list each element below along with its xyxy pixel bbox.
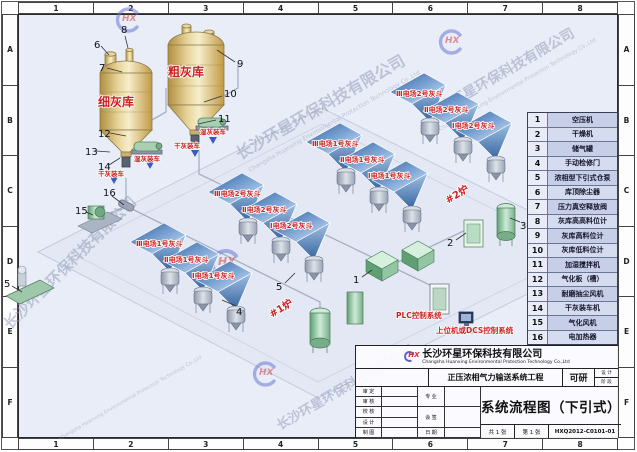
legend-item-number: 15: [528, 316, 548, 330]
sign-value: [382, 387, 418, 397]
legend-row: 1空压机: [528, 113, 617, 128]
legend-item-name: 浓相型下引式仓泵: [548, 171, 617, 185]
zone-label: B: [3, 85, 17, 156]
legend-row: 16电加热器: [528, 331, 617, 345]
title-block: HX 长沙环星环保科技有限公司 Changsha Huanxing Enviro…: [355, 345, 618, 438]
legend-row: 11加湿搅拌机: [528, 258, 617, 273]
legend-row: 2干燥机: [528, 128, 617, 143]
zone-label: D: [3, 226, 17, 297]
title-block-project-row: 正压浓相气力输送系统工程 可研 设 计 阶 段: [356, 369, 618, 387]
legend-item-number: 8: [528, 215, 548, 229]
zone-label: 8: [542, 3, 617, 13]
legend-row: 4手动检修门: [528, 157, 617, 172]
drawing-title: 系统流程图（下引式）: [481, 387, 621, 424]
zone-label: 3: [168, 439, 243, 449]
drawing-sheet: 1 2 3 4 5 6 7 8 1 2 3 4 5 6 7 8 A B C D …: [0, 0, 637, 452]
title-block-company: HX 长沙环星环保科技有限公司 Changsha Huanxing Enviro…: [356, 346, 618, 369]
legend-item-number: 14: [528, 302, 548, 316]
legend-item-name: 灰库高高料位计: [548, 215, 617, 229]
zone-label: E: [619, 296, 634, 367]
drawing-number: HXQ2012-C0101-01: [549, 425, 621, 438]
design-stage-labels: 设 计 阶 段: [595, 369, 618, 386]
legend-item-number: 9: [528, 229, 548, 243]
sign-label: 审 核: [356, 397, 382, 407]
title-block-main: 审 定 专 业 审 核 校 核 会 签 设 计 制 图 日 期 系统流程图（下引…: [356, 387, 618, 438]
zone-ruler-left: A B C D E F: [2, 14, 18, 438]
sign-value: [445, 428, 481, 438]
legend-row: 13耐磨抽尘风机: [528, 287, 617, 302]
company-name-cn: 长沙环星环保科技有限公司: [422, 350, 570, 360]
zone-ruler-bottom: 1 2 3 4 5 6 7 8: [18, 438, 618, 450]
legend-row: 14干灰装车机: [528, 302, 617, 317]
legend-item-name: 电加热器: [548, 331, 617, 345]
zone-label: 2: [93, 439, 168, 449]
zone-label: B: [619, 85, 634, 156]
legend-item-name: 干灰装车机: [548, 302, 617, 316]
signature-grid: 审 定 专 业 审 核 校 核 会 签 设 计 制 图 日 期: [356, 387, 481, 438]
company-logo: HX: [404, 350, 418, 364]
zone-label: 5: [318, 439, 393, 449]
legend-item-name: 压力真空释放阀: [548, 200, 617, 214]
zone-label: F: [3, 367, 17, 438]
sign-value: [382, 407, 418, 417]
sign-value: [445, 387, 481, 407]
legend-item-number: 1: [528, 113, 548, 127]
zone-label: 1: [19, 439, 93, 449]
legend-row: 8灰库高高料位计: [528, 215, 617, 230]
zone-label: 7: [467, 3, 542, 13]
legend-item-name: 库顶除尘器: [548, 186, 617, 200]
sign-label: 制 图: [356, 428, 382, 438]
logo-text: HX: [408, 351, 419, 359]
sign-label: 校 核: [356, 407, 382, 417]
legend-item-number: 10: [528, 244, 548, 258]
legend-item-number: 5: [528, 171, 548, 185]
legend-item-number: 16: [528, 331, 548, 345]
legend-row: 9灰库高料位计: [528, 229, 617, 244]
zone-label: 8: [542, 439, 617, 449]
zone-label: 6: [392, 3, 467, 13]
legend-row: 3储气罐: [528, 142, 617, 157]
stage-label-top: 设 计: [595, 369, 618, 378]
sign-label: 专 业: [418, 387, 445, 407]
legend-item-number: 11: [528, 258, 548, 272]
zone-label: D: [619, 226, 634, 297]
company-name-en: Changsha Huanxing Environmental Protecti…: [422, 360, 570, 365]
zone-label: 7: [467, 439, 542, 449]
zone-label: 5: [318, 3, 393, 13]
empty-cell: [356, 369, 429, 386]
legend-item-name: 气化板（槽）: [548, 273, 617, 287]
sign-label: 设 计: [356, 418, 382, 428]
legend-row: 10灰库低料位计: [528, 244, 617, 259]
legend-row: 7压力真空释放阀: [528, 200, 617, 215]
sign-label: 日 期: [418, 428, 445, 438]
zone-label: A: [619, 15, 634, 85]
stage-label-bottom: 阶 段: [595, 378, 618, 386]
legend-item-number: 13: [528, 287, 548, 301]
project-name: 正压浓相气力输送系统工程: [429, 369, 563, 386]
zone-label: 4: [243, 439, 318, 449]
sheet-info-row: 共 1 张 第 1 张 HXQ2012-C0101-01: [481, 424, 621, 438]
legend-item-number: 6: [528, 186, 548, 200]
sign-value: [382, 428, 418, 438]
zone-label: E: [3, 296, 17, 367]
zone-label: A: [3, 15, 17, 85]
legend-item-name: 加湿搅拌机: [548, 258, 617, 272]
zone-label: F: [619, 367, 634, 438]
legend-item-name: 气化风机: [548, 316, 617, 330]
legend-item-number: 4: [528, 157, 548, 171]
legend-item-number: 7: [528, 200, 548, 214]
legend-item-name: 灰库低料位计: [548, 244, 617, 258]
sign-value: [445, 407, 481, 427]
legend-table: 1空压机 2干燥机 3储气罐 4手动检修门 5浓相型下引式仓泵 6库顶除尘器 7…: [527, 112, 618, 345]
sheet-number: 第 1 张: [515, 425, 549, 438]
legend-item-name: 空压机: [548, 113, 617, 127]
legend-item-name: 灰库高料位计: [548, 229, 617, 243]
legend-item-number: 12: [528, 273, 548, 287]
legend-row: 5浓相型下引式仓泵: [528, 171, 617, 186]
legend-item-name: 手动检修门: [548, 157, 617, 171]
sheet-total: 共 1 张: [481, 425, 515, 438]
zone-label: 6: [392, 439, 467, 449]
legend-item-number: 2: [528, 128, 548, 142]
zone-label: 1: [19, 3, 93, 13]
legend-row: 12气化板（槽）: [528, 273, 617, 288]
legend-item-name: 耐磨抽尘风机: [548, 287, 617, 301]
zone-label: 4: [243, 3, 318, 13]
title-block-right: 系统流程图（下引式） 共 1 张 第 1 张 HXQ2012-C0101-01: [481, 387, 621, 438]
zone-label: 2: [93, 3, 168, 13]
legend-row: 6库顶除尘器: [528, 186, 617, 201]
legend-item-name: 干燥机: [548, 128, 617, 142]
zone-label: C: [3, 155, 17, 226]
sign-value: [382, 397, 418, 407]
sign-label: 审 定: [356, 387, 382, 397]
zone-ruler-top: 1 2 3 4 5 6 7 8: [18, 2, 618, 14]
design-stage-value: 可研: [563, 369, 595, 386]
zone-label: 3: [168, 3, 243, 13]
zone-ruler-right: A B C D E F: [618, 14, 635, 438]
sign-label: 会 签: [418, 407, 445, 427]
legend-item-number: 3: [528, 142, 548, 156]
zone-label: C: [619, 155, 634, 226]
sign-value: [382, 418, 418, 428]
legend-item-name: 储气罐: [548, 142, 617, 156]
legend-row: 15气化风机: [528, 316, 617, 331]
